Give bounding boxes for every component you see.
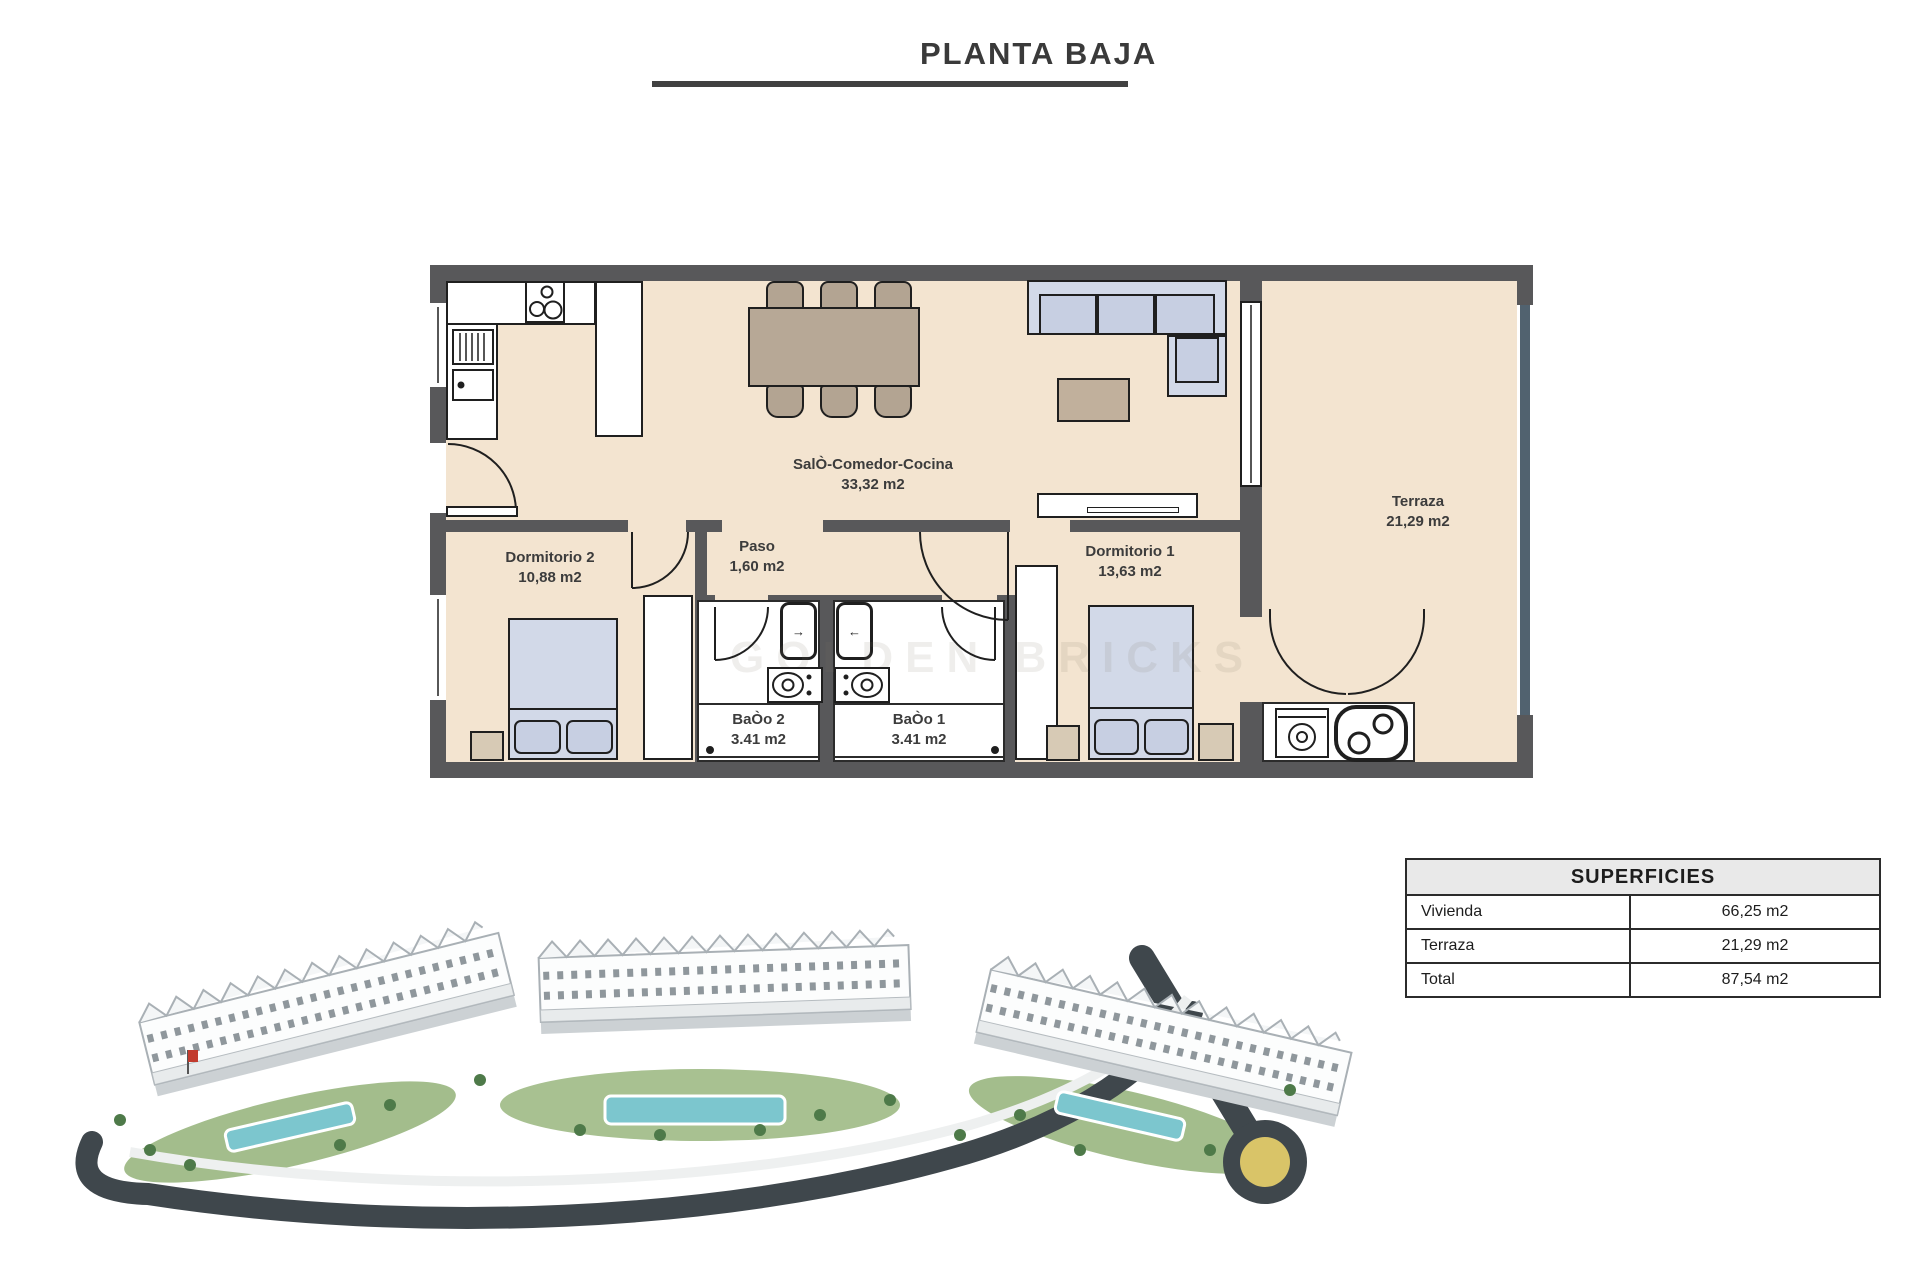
building-middle bbox=[538, 929, 911, 1034]
chair-icon bbox=[766, 385, 804, 418]
superficies-header: SUPERFICIES bbox=[1407, 860, 1879, 896]
page: PLANTA BAJA bbox=[0, 0, 1920, 1280]
room-label-dormitorio2: Dormitorio 2 10,88 m2 bbox=[460, 548, 640, 587]
table-row: Total 87,54 m2 bbox=[1407, 964, 1879, 996]
french-doors-icon bbox=[1270, 609, 1424, 694]
room-name: Dormitorio 1 bbox=[1040, 542, 1220, 562]
room-area: 33,32 m2 bbox=[753, 475, 993, 495]
row-value: 21,29 m2 bbox=[1631, 930, 1879, 962]
wardrobe bbox=[643, 595, 693, 760]
wall bbox=[446, 520, 628, 532]
wall bbox=[1240, 702, 1262, 762]
room-area: 13,63 m2 bbox=[1040, 562, 1220, 582]
room-name: Dormitorio 2 bbox=[460, 548, 640, 568]
sofa-seat bbox=[1155, 294, 1215, 335]
nightstand-icon bbox=[1046, 725, 1080, 761]
building-left bbox=[135, 917, 516, 1096]
coffee-table bbox=[1057, 378, 1130, 422]
room-label-bano1: BaÒo 1 3.41 m2 bbox=[836, 710, 1002, 749]
door-arc-icon bbox=[447, 444, 517, 516]
kitchen-counter bbox=[446, 281, 596, 325]
room-name: SalÒ-Comedor-Cocina bbox=[753, 455, 993, 475]
wall bbox=[430, 762, 1533, 778]
sofa-seat bbox=[1039, 294, 1097, 335]
row-value: 87,54 m2 bbox=[1631, 964, 1879, 996]
bed-line bbox=[510, 708, 616, 710]
room-label-terraza: Terraza 21,29 m2 bbox=[1338, 492, 1498, 531]
pillow-icon bbox=[1144, 719, 1189, 755]
wall bbox=[430, 265, 1533, 281]
nightstand-icon bbox=[1198, 723, 1234, 761]
entry-door-opening bbox=[430, 443, 446, 513]
page-title: PLANTA BAJA bbox=[920, 36, 1157, 72]
kitchen-sink-icon bbox=[452, 369, 494, 401]
window-icon bbox=[430, 595, 446, 700]
table-row: Terraza 21,29 m2 bbox=[1407, 930, 1879, 964]
chair-icon bbox=[874, 385, 912, 418]
sofa-chaise-seat bbox=[1175, 337, 1219, 383]
aerial-render bbox=[60, 900, 1360, 1235]
pillow-icon bbox=[566, 720, 613, 754]
room-label-salon: SalÒ-Comedor-Cocina 33,32 m2 bbox=[753, 455, 993, 494]
wall bbox=[820, 607, 833, 762]
window-icon bbox=[430, 303, 446, 387]
fridge-icon bbox=[452, 329, 494, 365]
room-area: 10,88 m2 bbox=[460, 568, 640, 588]
nightstand-icon bbox=[470, 731, 504, 761]
tv-icon bbox=[1087, 507, 1179, 513]
bed-icon bbox=[508, 618, 618, 760]
door-arc-icon bbox=[632, 532, 688, 588]
tv-unit bbox=[1037, 493, 1198, 518]
wall bbox=[1070, 520, 1240, 532]
sliding-door-icon bbox=[1240, 301, 1262, 487]
row-label: Terraza bbox=[1407, 930, 1631, 962]
watermark: GOLDEN BRICKS bbox=[730, 633, 1250, 683]
wall bbox=[823, 520, 1010, 532]
room-name: BaÒo 1 bbox=[836, 710, 1002, 730]
kitchen-island bbox=[595, 281, 643, 437]
room-label-paso: Paso 1,60 m2 bbox=[707, 537, 807, 576]
bed-line bbox=[1090, 707, 1192, 709]
dining-table bbox=[748, 307, 920, 387]
floor-plan: → ← SalÒ-Comedor-Cocina 33,32 m2 bbox=[430, 265, 1533, 778]
laundry-room bbox=[1262, 702, 1415, 762]
superficies-table: SUPERFICIES Vivienda 66,25 m2 Terraza 21… bbox=[1405, 858, 1881, 998]
sofa-seat bbox=[1097, 294, 1155, 335]
room-label-dormitorio1: Dormitorio 1 13,63 m2 bbox=[1040, 542, 1220, 581]
room-area: 3.41 m2 bbox=[836, 730, 1002, 750]
room-label-bano2: BaÒo 2 3.41 m2 bbox=[700, 710, 817, 749]
room-name: Terraza bbox=[1338, 492, 1498, 512]
room-name: Paso bbox=[707, 537, 807, 557]
room-area: 21,29 m2 bbox=[1338, 512, 1498, 532]
terrace-window-icon bbox=[1517, 305, 1533, 715]
roundabout-icon bbox=[1223, 1120, 1307, 1204]
pillow-icon bbox=[514, 720, 561, 754]
pillow-icon bbox=[1094, 719, 1139, 755]
row-label: Total bbox=[1407, 964, 1631, 996]
wall bbox=[1240, 281, 1262, 301]
room-area: 1,60 m2 bbox=[707, 557, 807, 577]
wall bbox=[1240, 487, 1262, 617]
title-underline bbox=[652, 81, 1128, 87]
table-row: Vivienda 66,25 m2 bbox=[1407, 896, 1879, 930]
row-value: 66,25 m2 bbox=[1631, 896, 1879, 928]
stove-icon bbox=[525, 281, 565, 323]
wall bbox=[686, 520, 722, 532]
room-name: BaÒo 2 bbox=[700, 710, 817, 730]
chair-icon bbox=[820, 385, 858, 418]
row-label: Vivienda bbox=[1407, 896, 1631, 928]
room-area: 3.41 m2 bbox=[700, 730, 817, 750]
